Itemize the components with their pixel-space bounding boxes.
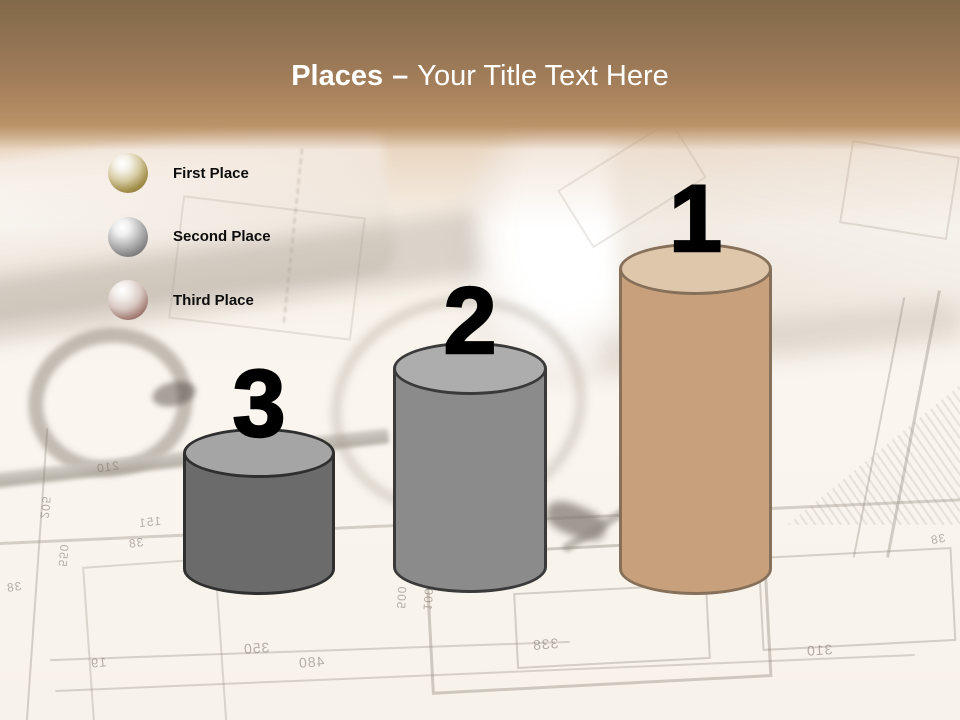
gold-sphere-icon xyxy=(108,153,148,193)
dimension-line xyxy=(50,641,570,661)
title-bar: Places – Your Title Text Here xyxy=(0,0,960,150)
cylinder-body xyxy=(393,369,547,594)
cylinder-second-place xyxy=(393,342,547,593)
legend-label: Second Place xyxy=(173,228,271,245)
dimension-number: 38 xyxy=(5,579,22,595)
title-separator: – xyxy=(392,60,408,93)
blueprint-line xyxy=(853,297,906,558)
dimension-number: 151 xyxy=(137,514,162,531)
compass-head-shape xyxy=(542,495,611,546)
blueprint-line xyxy=(26,428,49,720)
silver-sphere-icon xyxy=(108,217,148,257)
blueprint-rect xyxy=(758,547,957,651)
rank-label-1: 1 xyxy=(619,172,772,267)
dimension-number: 205 xyxy=(38,495,54,519)
bronze-sphere-icon xyxy=(108,280,148,320)
dimension-number: 350 xyxy=(242,639,269,657)
rank-label-3: 3 xyxy=(183,357,335,452)
dimension-number: 38 xyxy=(127,535,144,551)
presentation-slide: 350 480 19 38 550 205 151 38 210 500 100… xyxy=(0,0,960,720)
dimension-number: 210 xyxy=(95,458,120,475)
blueprint-dashed-line xyxy=(283,148,303,322)
legend-label: First Place xyxy=(173,165,249,182)
slide-title: Places – Your Title Text Here xyxy=(0,14,960,138)
dimension-number: 38 xyxy=(929,531,947,547)
legend-label: Third Place xyxy=(173,292,254,309)
rank-label-2: 2 xyxy=(393,274,547,369)
blueprint-rect xyxy=(839,140,960,240)
cylinder-first-place xyxy=(619,243,772,595)
blueprint-line xyxy=(886,290,941,558)
dimension-number: 310 xyxy=(805,641,832,659)
legend-item-first-place: First Place xyxy=(108,153,271,193)
set-square-hatching xyxy=(772,385,960,525)
legend: First Place Second Place Third Place xyxy=(108,153,271,344)
dimension-line xyxy=(55,654,914,692)
title-text: Your Title Text Here xyxy=(417,60,668,93)
legend-item-third-place: Third Place xyxy=(108,280,271,320)
cylinder-body xyxy=(619,269,772,595)
legend-item-second-place: Second Place xyxy=(108,217,271,257)
dimension-number: 550 xyxy=(56,543,72,567)
dimension-number: 19 xyxy=(89,654,107,671)
dimension-number: 338 xyxy=(531,635,559,653)
blueprint-rect xyxy=(513,583,711,669)
title-keyword: Places xyxy=(291,60,383,93)
dimension-number: 480 xyxy=(297,653,324,671)
